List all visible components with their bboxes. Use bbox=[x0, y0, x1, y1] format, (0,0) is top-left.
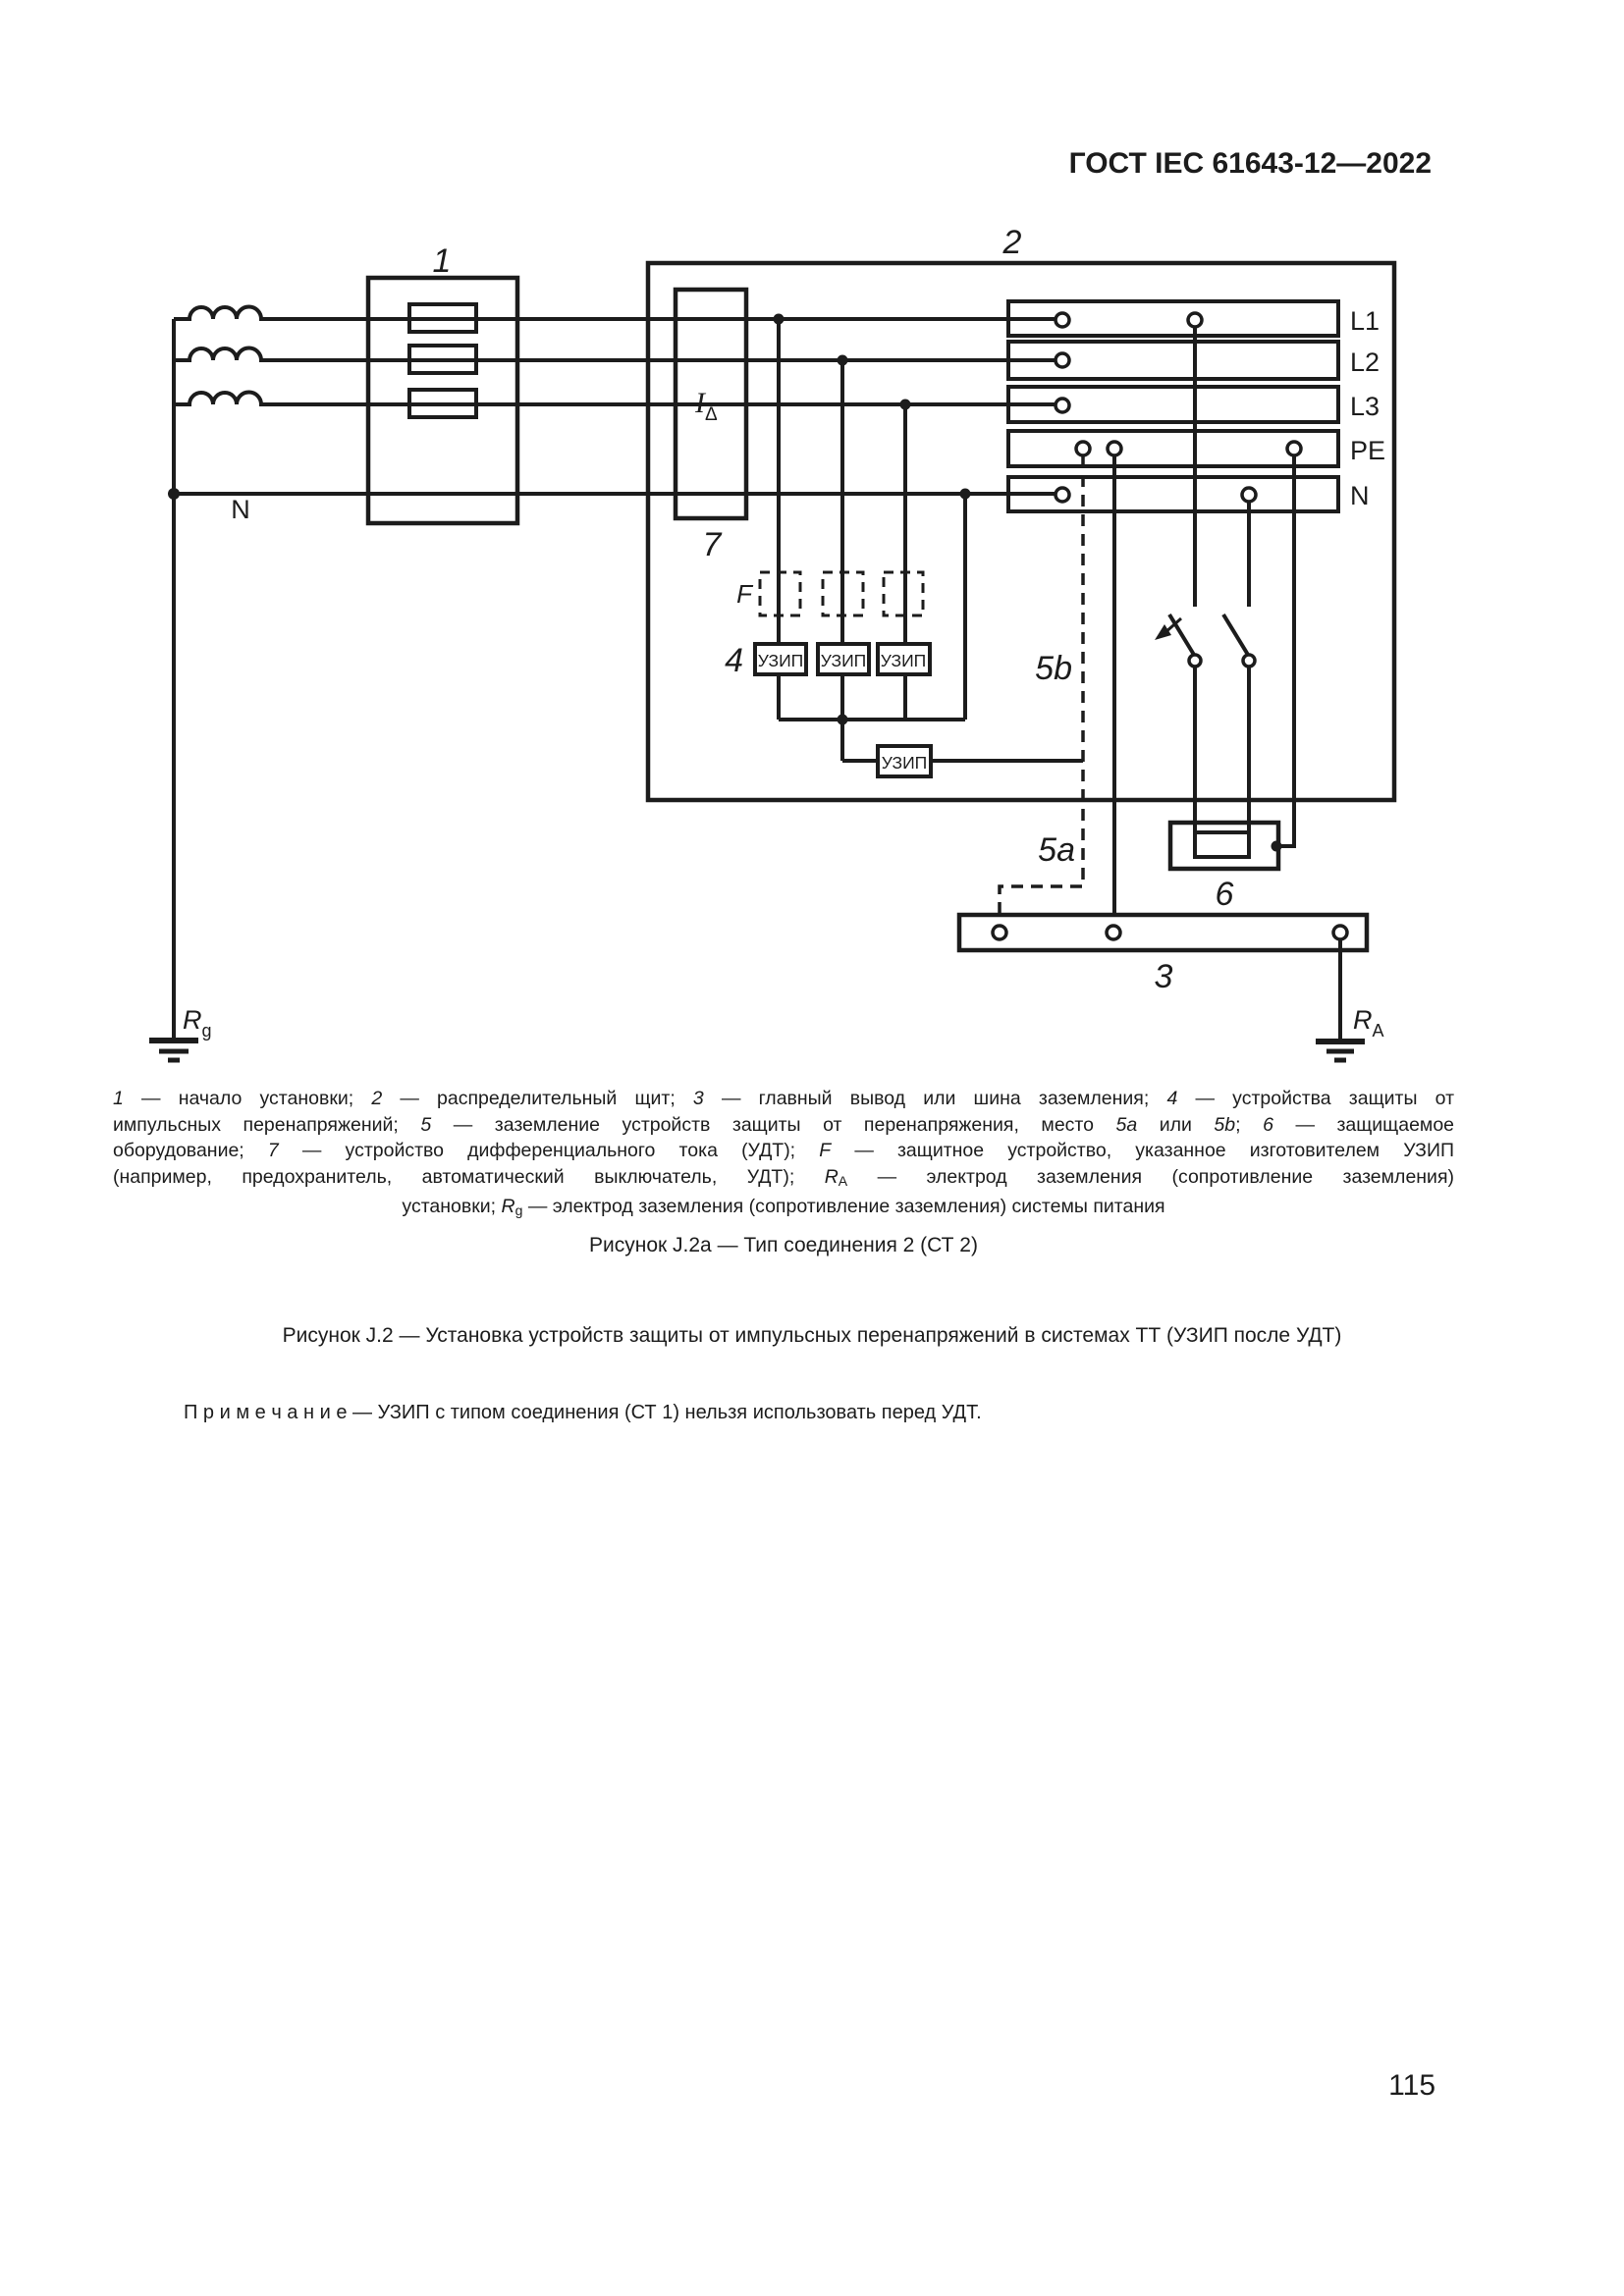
legend-line-5: установки; Rg — электрод заземления (соп… bbox=[113, 1194, 1454, 1224]
bus-bars: L1 L2 L3 PE N bbox=[1008, 301, 1385, 511]
label-5b: 5b bbox=[1035, 650, 1072, 687]
disconnector-f-boxes: F bbox=[736, 572, 923, 615]
label-f: F bbox=[736, 579, 754, 609]
legend-line-2: импульсных перенапряжений; 5 — заземлени… bbox=[113, 1112, 1454, 1139]
label-6: 6 bbox=[1216, 876, 1234, 913]
figure-caption-j2a: Рисунок J.2a — Тип соединения 2 (СТ 2) bbox=[113, 1234, 1454, 1257]
label-2: 2 bbox=[1002, 224, 1022, 261]
bus-label-l1: L1 bbox=[1350, 306, 1380, 336]
ground-symbol-source bbox=[149, 1041, 198, 1060]
pe-to-equipment bbox=[1278, 455, 1294, 846]
spd-label-1: УЗИП bbox=[758, 651, 803, 670]
label-neutral-source: N bbox=[231, 495, 250, 524]
legend-line-1: 1 — начало установки; 2 — распределитель… bbox=[113, 1086, 1454, 1112]
figure-legend: 1 — начало установки; 2 — распределитель… bbox=[113, 1086, 1454, 1224]
load-circuit-switches bbox=[1155, 327, 1255, 832]
transformer-coils bbox=[174, 307, 1056, 405]
legend-line-4: (например, предохранитель, автоматически… bbox=[113, 1164, 1454, 1195]
rcd-box: IΔ 7 bbox=[676, 290, 746, 563]
document-page: ГОСТ IEC 61643-12—2022 2 N Rg bbox=[0, 0, 1624, 2296]
installation-origin-box: 1 bbox=[368, 242, 517, 523]
label-5a: 5a bbox=[1038, 831, 1075, 869]
bus-label-l2: L2 bbox=[1350, 347, 1380, 377]
spd-label-4: УЗИП bbox=[882, 753, 927, 773]
label-4: 4 bbox=[725, 642, 743, 679]
label-rg: Rg bbox=[183, 1005, 212, 1041]
spd-label-2: УЗИП bbox=[821, 651, 866, 670]
figure-caption-j2: Рисунок J.2 — Установка устройств защиты… bbox=[83, 1324, 1541, 1348]
main-earthing-bar: 3 bbox=[959, 915, 1367, 1041]
ground-symbol-installation bbox=[1316, 1041, 1365, 1060]
label-3: 3 bbox=[1155, 958, 1173, 995]
bus-label-l3: L3 bbox=[1350, 392, 1380, 421]
trip-arrowhead bbox=[1155, 624, 1171, 640]
label-1: 1 bbox=[433, 242, 452, 280]
legend-line-3: оборудование; 7 — устройство дифференциа… bbox=[113, 1138, 1454, 1164]
spd-earthing-route: 5b 5a bbox=[1000, 455, 1114, 918]
label-7: 7 bbox=[703, 526, 723, 563]
page-number: 115 bbox=[1388, 2069, 1435, 2103]
bus-label-pe: PE bbox=[1350, 436, 1385, 465]
spd-label-3: УЗИП bbox=[881, 651, 926, 670]
spd-boxes: УЗИП УЗИП УЗИП УЗИП 4 bbox=[725, 642, 931, 776]
label-ra: RA bbox=[1353, 1005, 1384, 1041]
rcd-symbol: IΔ bbox=[694, 387, 718, 425]
bus-label-n: N bbox=[1350, 481, 1370, 510]
note-text: П р и м е ч а н и е — УЗИП с типом соеди… bbox=[184, 1402, 1454, 1424]
